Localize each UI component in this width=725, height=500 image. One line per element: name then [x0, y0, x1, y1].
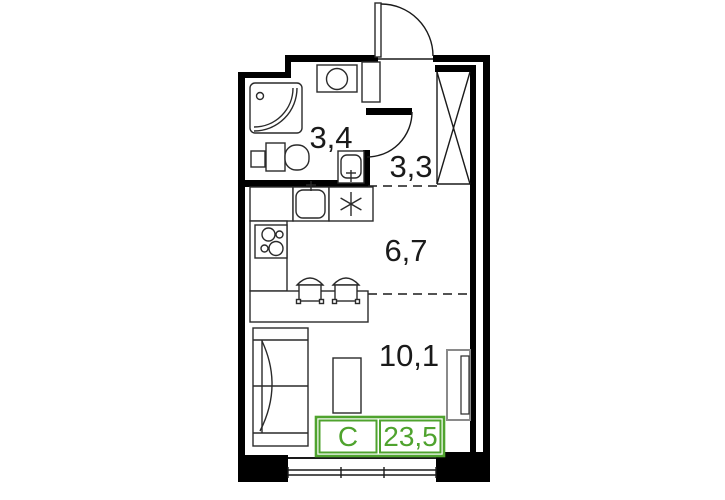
summary-type-label: С	[338, 421, 358, 452]
stove	[255, 225, 287, 258]
counter-cell-left	[250, 187, 293, 221]
wall-top-mid	[285, 55, 378, 62]
window	[288, 458, 436, 478]
stool-2-foot-left	[333, 300, 337, 304]
room-label-kitchen: 6,7	[384, 233, 427, 268]
wall-top-right	[433, 55, 490, 62]
sofa	[253, 328, 308, 446]
summary-area-value: 23,5	[383, 421, 438, 452]
stool-1	[297, 278, 324, 304]
room-label-living: 10,1	[379, 338, 439, 373]
stool-1-foot-left	[297, 300, 301, 304]
entrance-door	[375, 3, 433, 59]
wall-top-left	[238, 72, 291, 78]
wall-wardrobe-top	[435, 65, 476, 72]
side-table	[333, 358, 361, 413]
toilet-tank	[266, 143, 285, 171]
entrance-door-arc	[381, 4, 433, 56]
room-label-bathroom: 3,4	[309, 120, 352, 155]
wall-right-outer	[483, 55, 490, 482]
radiator-panel	[461, 356, 469, 414]
toilet-pipe-box	[251, 151, 265, 167]
bathtub	[250, 83, 302, 133]
room-label-hallway: 3,3	[389, 149, 432, 184]
stool-2-back	[333, 278, 359, 285]
washing-machine	[317, 65, 357, 92]
kitchen-sink-basin	[296, 190, 325, 218]
wall-bottom-left-block	[238, 455, 288, 482]
stool-2-foot-right	[356, 300, 360, 304]
radiator	[447, 350, 470, 420]
floor-plan: 3,4 3,3 6,7 10,1 С 23,5	[0, 0, 725, 500]
stool-1-foot-right	[320, 300, 324, 304]
duct-shaft	[362, 62, 380, 102]
floor-plan-page: 3,4 3,3 6,7 10,1 С 23,5	[0, 0, 725, 500]
toilet-bowl	[285, 145, 309, 170]
bathroom-door-leaf	[366, 108, 412, 115]
entrance-door-leaf	[375, 3, 381, 57]
toilet	[251, 143, 309, 171]
stool-2-seat	[335, 285, 357, 301]
wardrobe	[437, 72, 470, 184]
stool-2	[333, 278, 360, 304]
summary-badge: С 23,5	[316, 417, 444, 456]
stool-1-back	[297, 278, 323, 285]
bathroom-sink	[338, 151, 364, 183]
wall-left	[238, 72, 245, 482]
stool-1-seat	[299, 285, 321, 301]
